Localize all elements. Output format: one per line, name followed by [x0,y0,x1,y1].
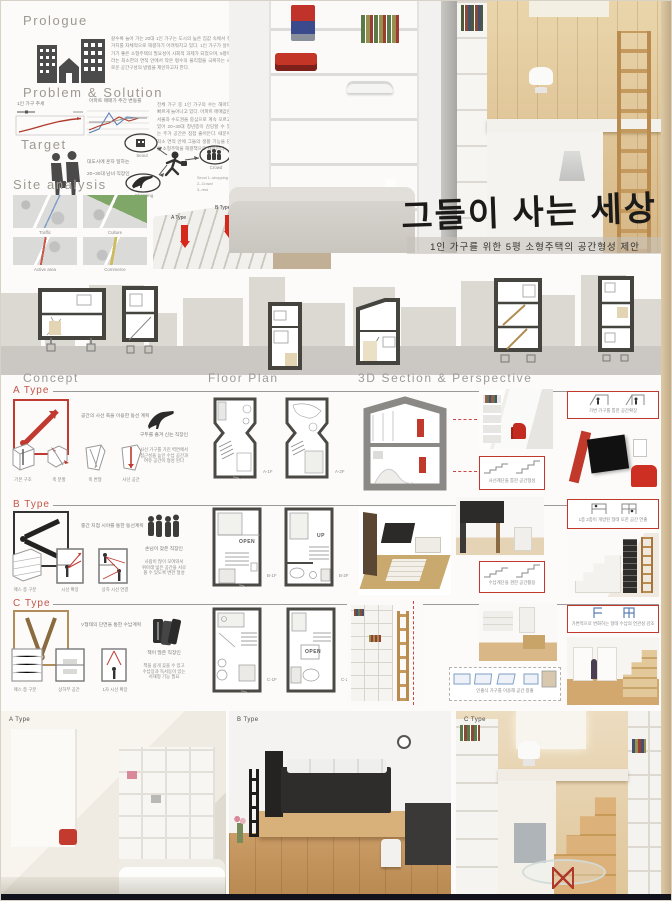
prologue-heading: Prologue [23,13,88,28]
prologue-text: 갈수록 늘어 가는 20대 1인 가구는 도시의 높은 집값 속에서 주거지를 … [111,35,231,72]
bottom-render-c: C Type [456,711,672,894]
toy-car [347,81,393,93]
bottom-render-a: A Type [1,711,226,894]
a-connector-2 [453,471,477,472]
hero-side-books [461,5,483,31]
board-edge-bottom [1,894,672,901]
target-heading: Target [21,137,67,152]
plan-a2f [283,397,331,479]
a-render-shelf [479,389,553,449]
building-section-5 [493,277,543,363]
b-step-1 [9,545,45,585]
a-persona-text: 사선 가구를 가진 벽면에서 접근성을 높인 수납 공간과 여유 공간이 형성 … [125,447,203,464]
plan-b1f-tag: OPEN [239,539,255,545]
a-concept-caption: 공간의 사선 축을 이용한 동선 계획 [81,413,149,421]
b-type-label: B Type [13,499,50,510]
c-render-closets [567,637,659,705]
c-persona-caption: 책이 많은 직장인 [127,651,201,657]
b-render-loftbed [456,497,544,555]
a-connector-1 [453,419,477,420]
b-callout-stairs: 수납계단을 겸한 공간활용 [479,561,545,593]
a-step-2 [45,441,73,473]
map-commerce [83,237,147,265]
target-node-crowd: Crowd [203,165,229,170]
plan-a1f-label: A-1F [263,469,273,474]
hero-chair [529,67,553,85]
c-step-3-label: 1자 시선 확장 [93,687,137,693]
column-perspective: 3D Section & Perspective [358,371,532,385]
plan-c1f [211,607,263,693]
plan-b2f: UP [283,507,335,587]
c-step-1 [9,645,45,685]
board-edge-right [661,1,672,894]
building-section-3 [267,301,303,371]
a-step-4-label: 사선 공간 [113,477,149,483]
a-render-tv [567,425,659,497]
books-icon [149,615,181,647]
target-node-seoul: Seoul [129,153,155,158]
c-concept-caption: V형태의 단면을 통한 수납계획 [81,622,141,630]
crowd-icon [145,513,183,543]
c-callout-top: 가변적으로 변화하는 형태 수납의 연관성 강조 [567,605,659,633]
b-callout-bottom-label: 수납계단을 겸한 공간활용 [480,580,544,586]
toy-robot [291,5,315,41]
plan-b2f-tag: UP [317,533,325,539]
c-step-2-label: 상하부 공간 [47,687,91,693]
bottom-render-a-label: A Type [9,717,30,723]
hero-skylight [529,1,609,17]
a-3d-section [359,395,451,493]
axon-pin-a-label: A Type [171,215,186,221]
b-callout-top: 1층 2층이 개방된 형태 또한 공간 연출 [567,499,659,529]
a-step-2-label: 축 분할 [41,477,77,483]
map-traffic [13,195,77,228]
plan-b1f-label: B-1F [267,573,277,578]
plan-a1f [211,397,259,479]
plan-c2f: OPEN [285,607,337,693]
map-activearea [13,237,77,265]
presentation-board: Prologue 갈수록 늘어 가는 20대 1인 가구는 도시의 높은 집값 … [0,0,672,901]
c-step-1-label: 매스 층 구분 [3,687,47,693]
map-culture [83,195,147,228]
plan-b1f: OPEN [211,507,263,587]
site-heading: Site analysis [13,177,107,192]
board-subtitle-band: 1인 가구를 위한 5평 소형주택의 공간형성 제안 [407,237,663,254]
b-concept-caption: 중간 지점 시야를 통한 동선계획 [81,523,144,531]
b-step-2 [55,545,85,585]
axon-pin-a [181,225,188,241]
skyline-band [1,263,672,375]
board-subtitle: 1인 가구를 위한 5평 소형주택의 공간형성 제안 [430,239,640,253]
b-3d-cutaway [359,507,451,595]
hero-sofa [229,187,415,253]
toy-truck [275,53,317,71]
b-persona-caption: 손님이 잦은 직장인 [127,547,201,553]
board-title: 그들이 사는 세상 [392,180,665,235]
a-callout-bottom-label: 사선계단을 통한 공간형성 [480,478,544,484]
a-step-1-label: 기본 구조 [5,477,41,483]
c-callout-bottom-label: 인출식 가구를 이용해 공간 창출 [452,688,558,694]
c-3d-section [347,601,423,705]
b-step-3-label: 상하 시선 연결 [93,587,137,593]
buildings-icon [37,37,105,83]
c-type-label: C Type [13,598,51,609]
a-callout-stairs: 사선계단을 통한 공간형성 [479,456,545,490]
a-step-1 [9,441,37,473]
plan-b2f-label: B-2F [339,573,349,578]
c-render-kitchen [479,603,557,661]
c-callout-pullout: 인출식 가구를 이용해 공간 창출 [449,667,561,701]
bottom-render-b: B Type [229,711,451,894]
plan-a2f-label: A-2F [335,469,345,474]
map-culture-label: Culture [83,230,147,235]
building-section-1 [37,287,107,353]
c-persona-text: 책을 쉽게 꽂을 수 있고 수납장과 독서등이 있는 서재형 기능 필요 [125,663,203,680]
c-callout-top-label: 가변적으로 변화하는 형태 수납의 연관성 강조 [568,621,658,627]
building-section-2 [121,285,159,355]
column-floorplan: Floor Plan [208,371,279,385]
chart1 [15,108,85,136]
heel-icon [147,409,175,431]
a-step-3-label: 축 변형 [77,477,113,483]
hero-books-top [361,15,399,43]
column-concept: Concept [23,371,79,385]
a-persona-caption: 구두를 즐겨 신는 직장인 [127,433,201,439]
b-step-2-label: 시선 확장 [49,587,91,593]
a-type-label: A Type [13,385,49,396]
map-traffic-label: Traffic [13,230,77,235]
a-callout-top-label: 가변 가구를 통한 공간확장 [568,408,658,414]
b-callout-top-label: 1층 2층이 개방된 형태 또한 공간 연출 [568,517,658,523]
building-section-4 [355,297,401,371]
c-step-2 [53,645,87,685]
building-section-6 [597,275,635,363]
bottom-render-b-label: B Type [237,717,259,723]
a-callout-top: 가변 가구를 통한 공간확장 [567,391,659,419]
b-persona-text: 사람이 많이 모여와서 위아래 넓은 공간을 서로 볼 수 있도록 변한 형성 [125,559,203,576]
plan-c1f-label: C-1F [267,677,277,682]
a-step-3 [81,441,109,473]
bottom-render-c-label: C Type [464,717,486,723]
b-render-stairs [567,533,659,597]
plan-c2f-tag: OPEN [305,649,321,655]
b-step-1-label: 매스 층 구분 [3,587,47,593]
